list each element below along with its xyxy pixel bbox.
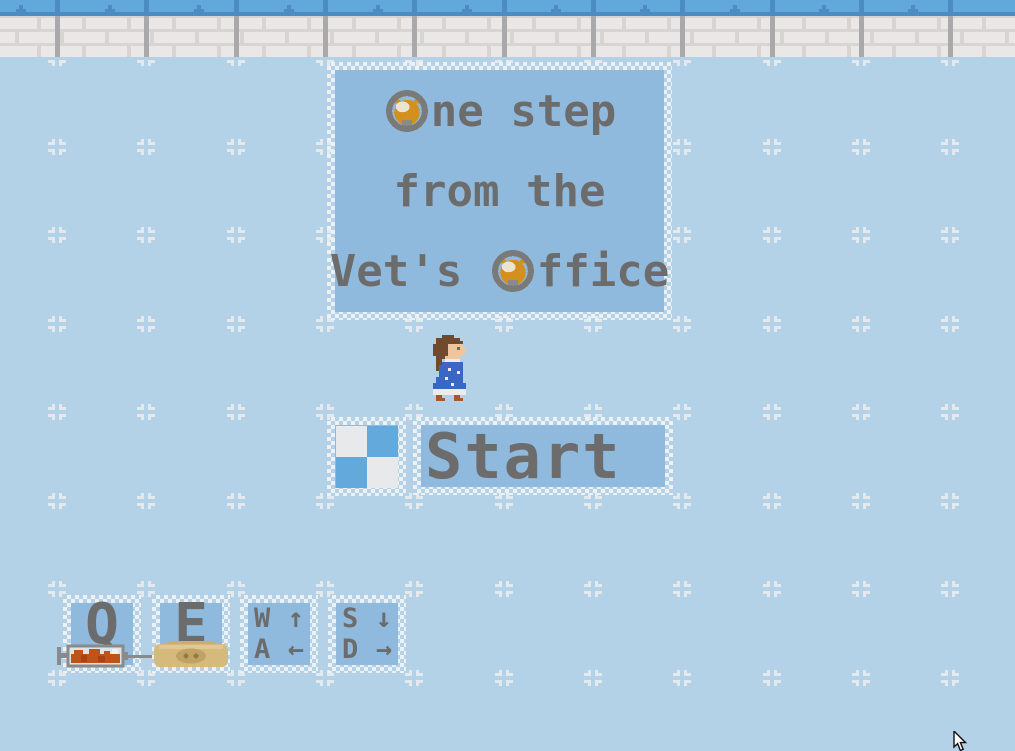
checker-tile-icon [336, 426, 398, 488]
hint-keys-wa: W ↑ A ← [240, 595, 318, 673]
pill-icon [153, 641, 229, 669]
hint-key-e: E [152, 595, 230, 673]
start-button[interactable]: Start [413, 417, 673, 495]
mouse-cursor-icon [953, 731, 969, 751]
title-text-2: from the [394, 166, 606, 217]
arrow-right-icon: → [376, 636, 392, 663]
title-text-3a: Vet's [330, 246, 489, 297]
cat-in-o-icon [490, 248, 536, 294]
syringe-icon [55, 639, 155, 671]
arrow-down-icon: ↓ [376, 605, 392, 632]
hint-key-q: Q [63, 595, 141, 673]
key-d-label: D [342, 636, 358, 663]
key-s-label: S [342, 605, 358, 632]
title-line-2: from the [394, 151, 606, 231]
game-title-screen: ne step from the Vet's ffice Start [0, 0, 1015, 751]
title-text-1: ne step [431, 86, 616, 137]
arrow-left-icon: ← [288, 636, 304, 663]
title-line-3: Vet's ffice [330, 231, 669, 311]
cat-in-o-icon [384, 88, 430, 134]
hint-keys-sd: S ↓ D → [328, 595, 406, 673]
title-text-3b: ffice [537, 246, 669, 297]
start-button-label: Start [421, 425, 665, 487]
key-w-label: W [254, 605, 270, 632]
player-character-sprite [430, 335, 469, 401]
key-a-label: A [254, 636, 270, 663]
title-panel: ne step from the Vet's ffice [327, 62, 672, 320]
menu-selector-tile [327, 417, 406, 496]
title-line-1: ne step [383, 71, 616, 151]
arrow-up-icon: ↑ [288, 605, 304, 632]
